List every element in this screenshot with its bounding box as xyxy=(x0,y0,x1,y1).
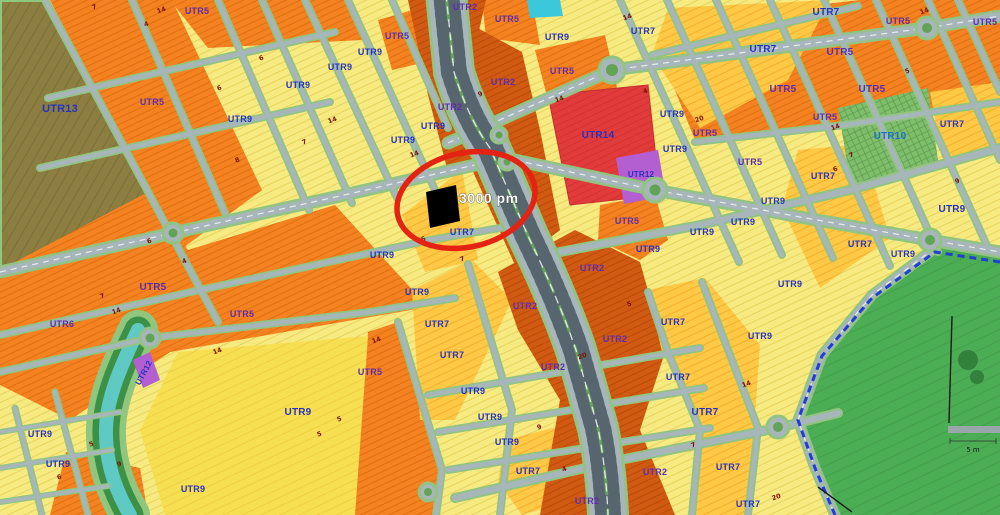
roundabout xyxy=(916,17,938,39)
zone-label-utr9: UTR9 xyxy=(228,114,252,124)
zone-label-utr14: UTR14 xyxy=(582,130,615,141)
zone-label-utr7: UTR7 xyxy=(736,499,760,509)
zone-label-utr6: UTR6 xyxy=(50,319,74,329)
zone-label-utr9: UTR9 xyxy=(731,217,755,227)
zone-label-utr2: UTR2 xyxy=(580,263,604,273)
zone-label-utr9: UTR9 xyxy=(328,62,352,72)
zone-label-utr9: UTR9 xyxy=(761,196,785,206)
zone-label-utr2: UTR2 xyxy=(513,301,537,311)
zone-cyan-parcel xyxy=(527,0,563,18)
zone-label-utr5: UTR5 xyxy=(770,84,797,95)
zone-label-utr9: UTR9 xyxy=(660,109,684,119)
zone-label-utr7: UTR7 xyxy=(811,171,835,181)
road-stub xyxy=(948,426,1000,433)
zone-label-utr7: UTR7 xyxy=(940,119,964,129)
zone-label-utr7: UTR7 xyxy=(813,7,840,18)
zone-label-utr7: UTR7 xyxy=(450,227,474,237)
zone-label-utr5: UTR5 xyxy=(615,216,639,226)
zone-label-utr5: UTR5 xyxy=(693,128,717,138)
zone-label-utr9: UTR9 xyxy=(46,459,70,469)
zone-label-utr5: UTR5 xyxy=(738,157,762,167)
zone-label-utr9: UTR9 xyxy=(663,144,687,154)
zone-label-utr10: UTR10 xyxy=(874,131,907,142)
zone-label-utr9: UTR9 xyxy=(285,407,312,418)
tree-icon xyxy=(970,370,984,384)
zone-label-utr7: UTR7 xyxy=(425,319,449,329)
zone-label-utr9: UTR9 xyxy=(545,32,569,42)
zone-label-utr5: UTR5 xyxy=(859,84,886,95)
zone-label-utr9: UTR9 xyxy=(405,287,429,297)
zone-label-utr7: UTR7 xyxy=(716,462,740,472)
roundabout xyxy=(643,178,667,202)
zone-label-utr5: UTR5 xyxy=(550,66,574,76)
roundabout xyxy=(919,229,941,251)
map-viewport: 5 m UTR13UTR5UTR5UTR9UTR9UTR9UTR5UTR9UTR… xyxy=(0,0,1000,515)
roundabout xyxy=(419,483,437,501)
zone-label-utr7: UTR7 xyxy=(661,317,685,327)
zone-label-utr5: UTR5 xyxy=(358,367,382,377)
zone-label-utr2: UTR2 xyxy=(491,77,515,87)
zone-label-utr5: UTR5 xyxy=(973,17,997,27)
zone-label-utr9: UTR9 xyxy=(939,204,966,215)
zone-label-utr5: UTR5 xyxy=(140,97,164,107)
zone-label-utr5: UTR5 xyxy=(813,112,837,122)
zone-label-utr9: UTR9 xyxy=(370,250,394,260)
highlighted-parcel xyxy=(426,185,460,228)
zone-label-utr9: UTR9 xyxy=(478,412,502,422)
zone-label-utr2: UTR2 xyxy=(603,334,627,344)
roundabout xyxy=(163,223,183,243)
zone-label-utr9: UTR9 xyxy=(286,80,310,90)
zone-label-utr7: UTR7 xyxy=(516,466,540,476)
zoning-map-canvas[interactable]: 5 m UTR13UTR5UTR5UTR9UTR9UTR9UTR5UTR9UTR… xyxy=(0,0,1000,515)
zone-label-utr9: UTR9 xyxy=(28,429,52,439)
zone-label-utr9: UTR9 xyxy=(461,386,485,396)
zone-label-utr9: UTR9 xyxy=(778,279,802,289)
zone-label-utr7: UTR7 xyxy=(631,26,655,36)
zone-label-utr2: UTR2 xyxy=(643,467,667,477)
zone-label-utr9: UTR9 xyxy=(391,135,415,145)
roundabout xyxy=(491,127,507,143)
zone-label-utr9: UTR9 xyxy=(181,484,205,494)
zone-label-utr5: UTR5 xyxy=(185,6,209,16)
zone-label-utr9: UTR9 xyxy=(421,121,445,131)
zone-label-utr7: UTR7 xyxy=(666,372,690,382)
zone-label-utr9: UTR9 xyxy=(636,244,660,254)
zone-label-utr7: UTR7 xyxy=(440,350,464,360)
zone-label-utr7: UTR7 xyxy=(692,407,719,418)
zone-label-utr2: UTR2 xyxy=(575,496,599,506)
tree-icon xyxy=(958,350,978,370)
zone-label-utr9: UTR9 xyxy=(690,227,714,237)
zone-label-utr9: UTR9 xyxy=(358,47,382,57)
roundabout xyxy=(767,416,789,438)
zone-label-utr9: UTR9 xyxy=(891,249,915,259)
zone-label-utr7: UTR7 xyxy=(848,239,872,249)
zone-label-utr5: UTR5 xyxy=(827,47,854,58)
zone-utr9-wedge xyxy=(140,336,368,515)
zone-label-utr7: UTR7 xyxy=(750,44,777,55)
zone-label-utr9: UTR9 xyxy=(748,331,772,341)
zone-label-utr5: UTR5 xyxy=(886,16,910,26)
zone-label-utr5: UTR5 xyxy=(495,14,519,24)
roundabout xyxy=(599,57,625,83)
roundabout xyxy=(140,328,160,348)
zone-label-utr5: UTR5 xyxy=(230,309,254,319)
zone-label-utr9: UTR9 xyxy=(495,437,519,447)
zone-label-utr2: UTR2 xyxy=(438,102,462,112)
zone-label-utr5: UTR5 xyxy=(140,282,167,293)
zone-label-utr2: UTR2 xyxy=(453,2,477,12)
zone-label-utr12: UTR12 xyxy=(628,170,655,179)
zone-label-utr13: UTR13 xyxy=(42,103,78,115)
zone-label-utr5: UTR5 xyxy=(385,31,409,41)
annotation-label: 3000 pm xyxy=(459,190,519,206)
zone-label-utr2: UTR2 xyxy=(541,362,565,372)
park-dimension-label: 5 m xyxy=(966,446,980,454)
